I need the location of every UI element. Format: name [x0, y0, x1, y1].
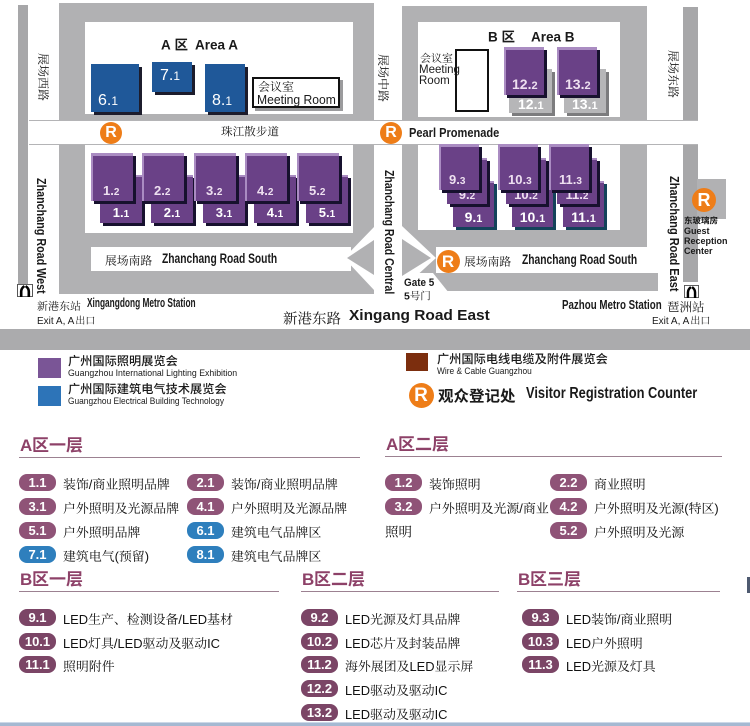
svg-text:(: ( — [684, 500, 689, 515]
svg-text:LED: LED — [410, 658, 435, 673]
svg-text:IC: IC — [207, 635, 220, 650]
svg-text:IC: IC — [435, 682, 448, 697]
svg-text:Exit A, A: Exit A, A — [652, 316, 690, 327]
svg-text:A: A — [161, 37, 174, 52]
svg-text:/LED: /LED — [178, 611, 207, 626]
svg-text:A: A — [20, 436, 32, 455]
svg-text:LED: LED — [566, 635, 591, 650]
svg-text:/LED: /LED — [114, 635, 143, 650]
svg-text:): ) — [145, 548, 149, 563]
svg-text:/: / — [257, 476, 261, 491]
svg-text:/: / — [89, 476, 93, 491]
svg-text:(: ( — [115, 548, 120, 563]
svg-text:/: / — [617, 611, 621, 626]
svg-text:B: B — [302, 570, 314, 589]
svg-text:B: B — [488, 29, 502, 44]
svg-text:5: 5 — [404, 290, 410, 302]
svg-text:/: / — [519, 500, 523, 515]
svg-text:LED: LED — [345, 611, 370, 626]
svg-text:IC: IC — [435, 706, 448, 721]
svg-text:LED: LED — [63, 611, 88, 626]
svg-text:LED: LED — [345, 706, 370, 721]
svg-text:LED: LED — [345, 635, 370, 650]
svg-text:A: A — [386, 435, 398, 454]
svg-text:B: B — [518, 570, 530, 589]
svg-text:B: B — [20, 570, 32, 589]
svg-text:LED: LED — [345, 682, 370, 697]
svg-text:LED: LED — [566, 658, 591, 673]
svg-text:): ) — [714, 500, 718, 515]
svg-text:LED: LED — [566, 611, 591, 626]
svg-text:LED: LED — [63, 635, 88, 650]
svg-text:Exit A, A: Exit A, A — [37, 316, 75, 327]
svg-text:Area A: Area A — [195, 37, 238, 52]
svg-text:Area B: Area B — [531, 29, 575, 44]
